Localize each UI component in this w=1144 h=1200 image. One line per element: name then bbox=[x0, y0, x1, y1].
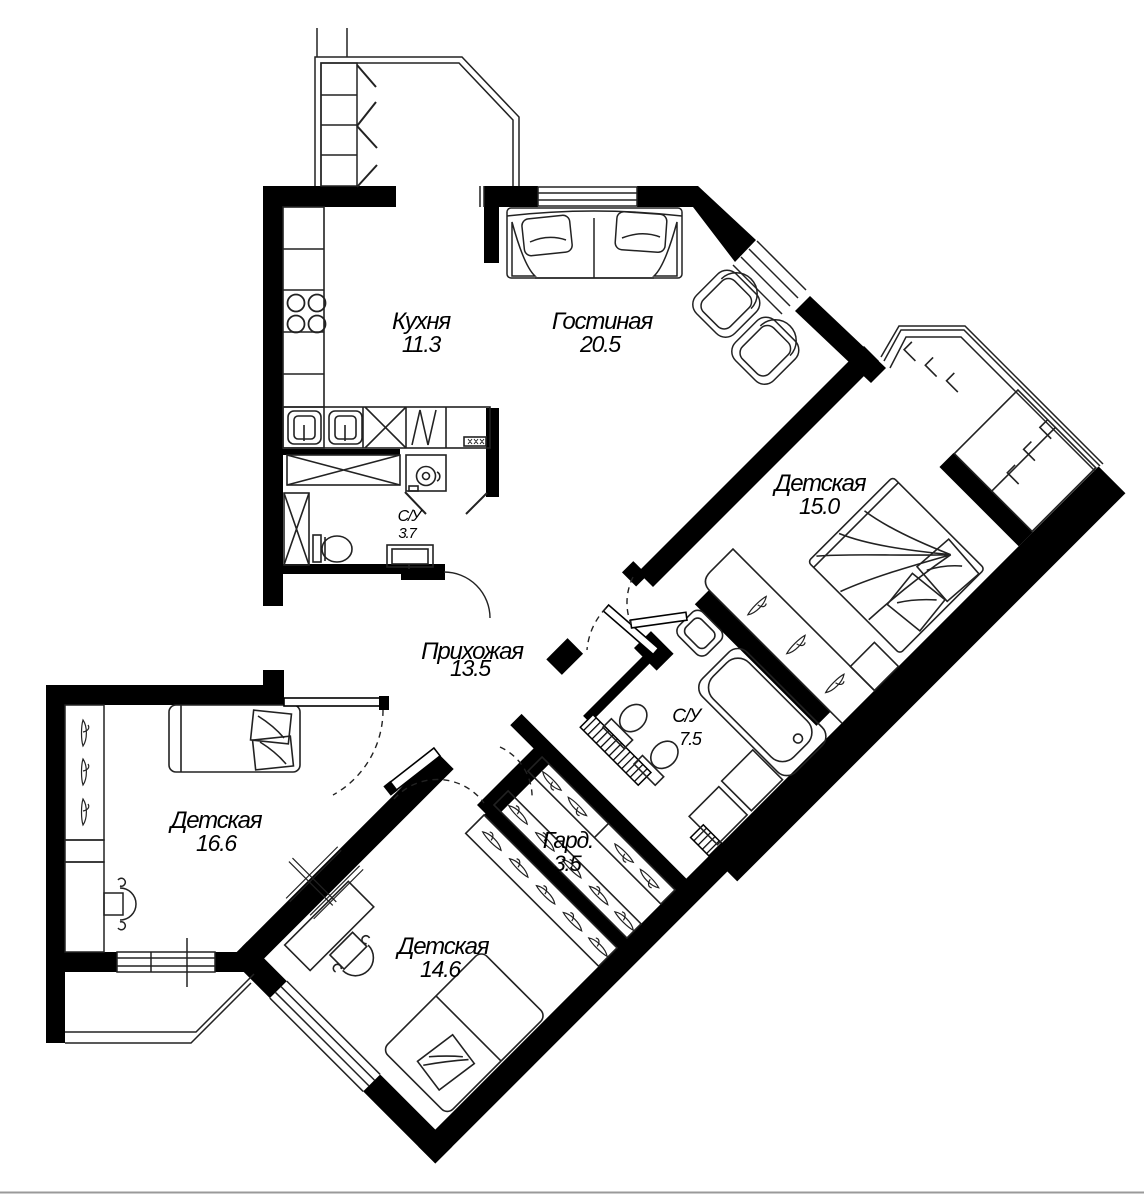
svg-text:20.5: 20.5 bbox=[579, 331, 621, 357]
svg-text:11.3: 11.3 bbox=[402, 331, 442, 357]
svg-text:15.0: 15.0 bbox=[799, 493, 840, 519]
svg-text:С/У: С/У bbox=[398, 508, 424, 525]
svg-text:Гард.: Гард. bbox=[543, 827, 593, 853]
svg-text:16.6: 16.6 bbox=[196, 830, 237, 856]
svg-text:С/У: С/У bbox=[672, 706, 703, 727]
svg-text:3.5: 3.5 bbox=[554, 851, 583, 876]
svg-text:14.6: 14.6 bbox=[420, 956, 461, 982]
svg-text:3.7: 3.7 bbox=[398, 525, 417, 542]
svg-text:7.5: 7.5 bbox=[679, 729, 703, 749]
svg-text:13.5: 13.5 bbox=[450, 655, 491, 681]
